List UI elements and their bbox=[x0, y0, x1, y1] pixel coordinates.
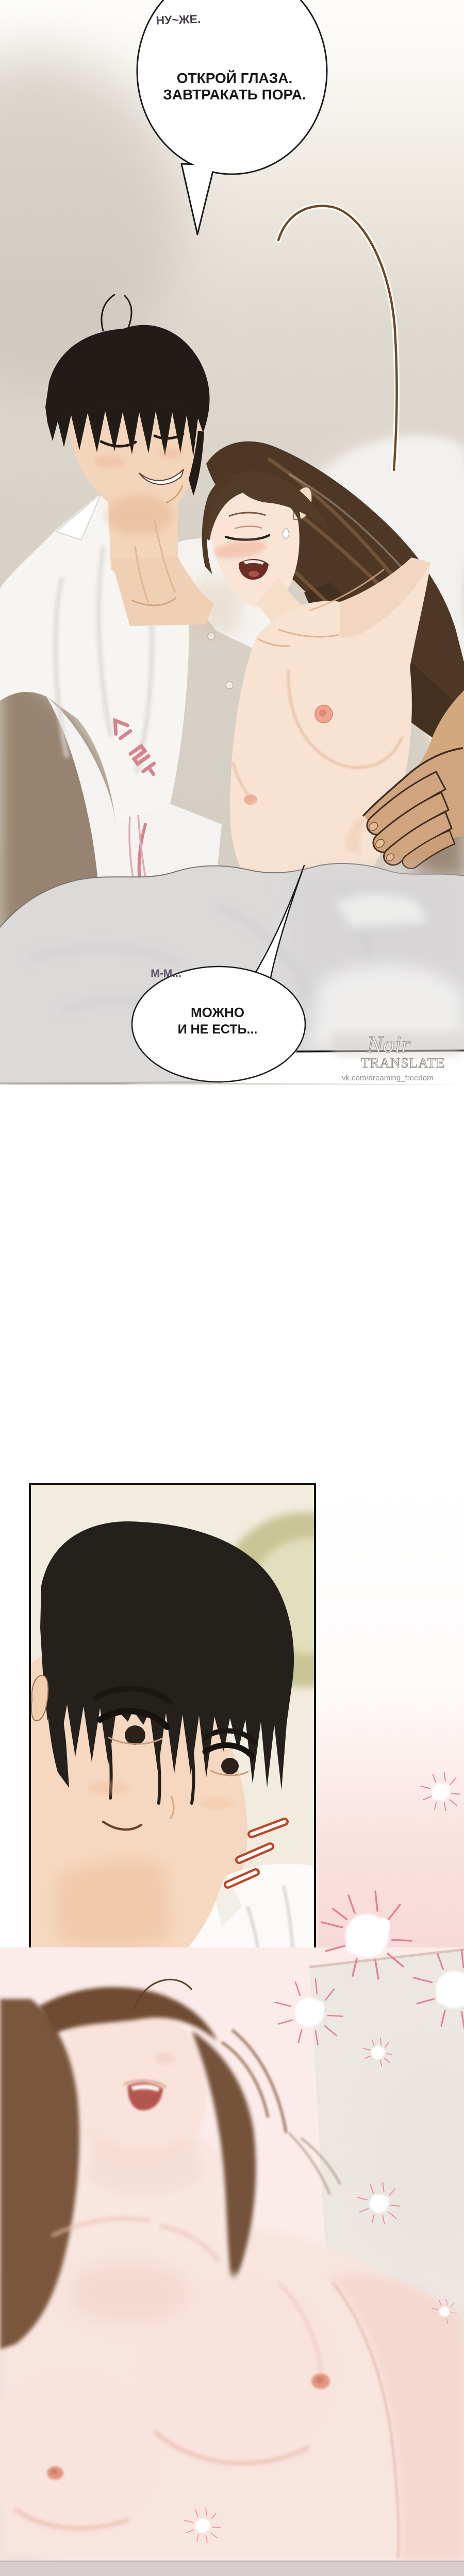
svg-text:М-М...: М-М... bbox=[151, 968, 181, 979]
svg-text:ЗАВТРАКАТЬ ПОРА.: ЗАВТРАКАТЬ ПОРА. bbox=[163, 87, 306, 103]
svg-text:Noir: Noir bbox=[367, 1031, 411, 1057]
svg-text:НУ~ЖЕ.: НУ~ЖЕ. bbox=[156, 12, 201, 27]
svg-text:МОЖНО: МОЖНО bbox=[191, 1005, 244, 1020]
svg-text:ОТКРОЙ ГЛАЗА.: ОТКРОЙ ГЛАЗА. bbox=[177, 70, 293, 86]
svg-text:И НЕ ЕСТЬ...: И НЕ ЕСТЬ... bbox=[178, 1022, 258, 1037]
svg-text:TRANSLATE: TRANSLATE bbox=[361, 1055, 445, 1071]
svg-text:vk.com/dreaming_freedom: vk.com/dreaming_freedom bbox=[342, 1074, 434, 1082]
